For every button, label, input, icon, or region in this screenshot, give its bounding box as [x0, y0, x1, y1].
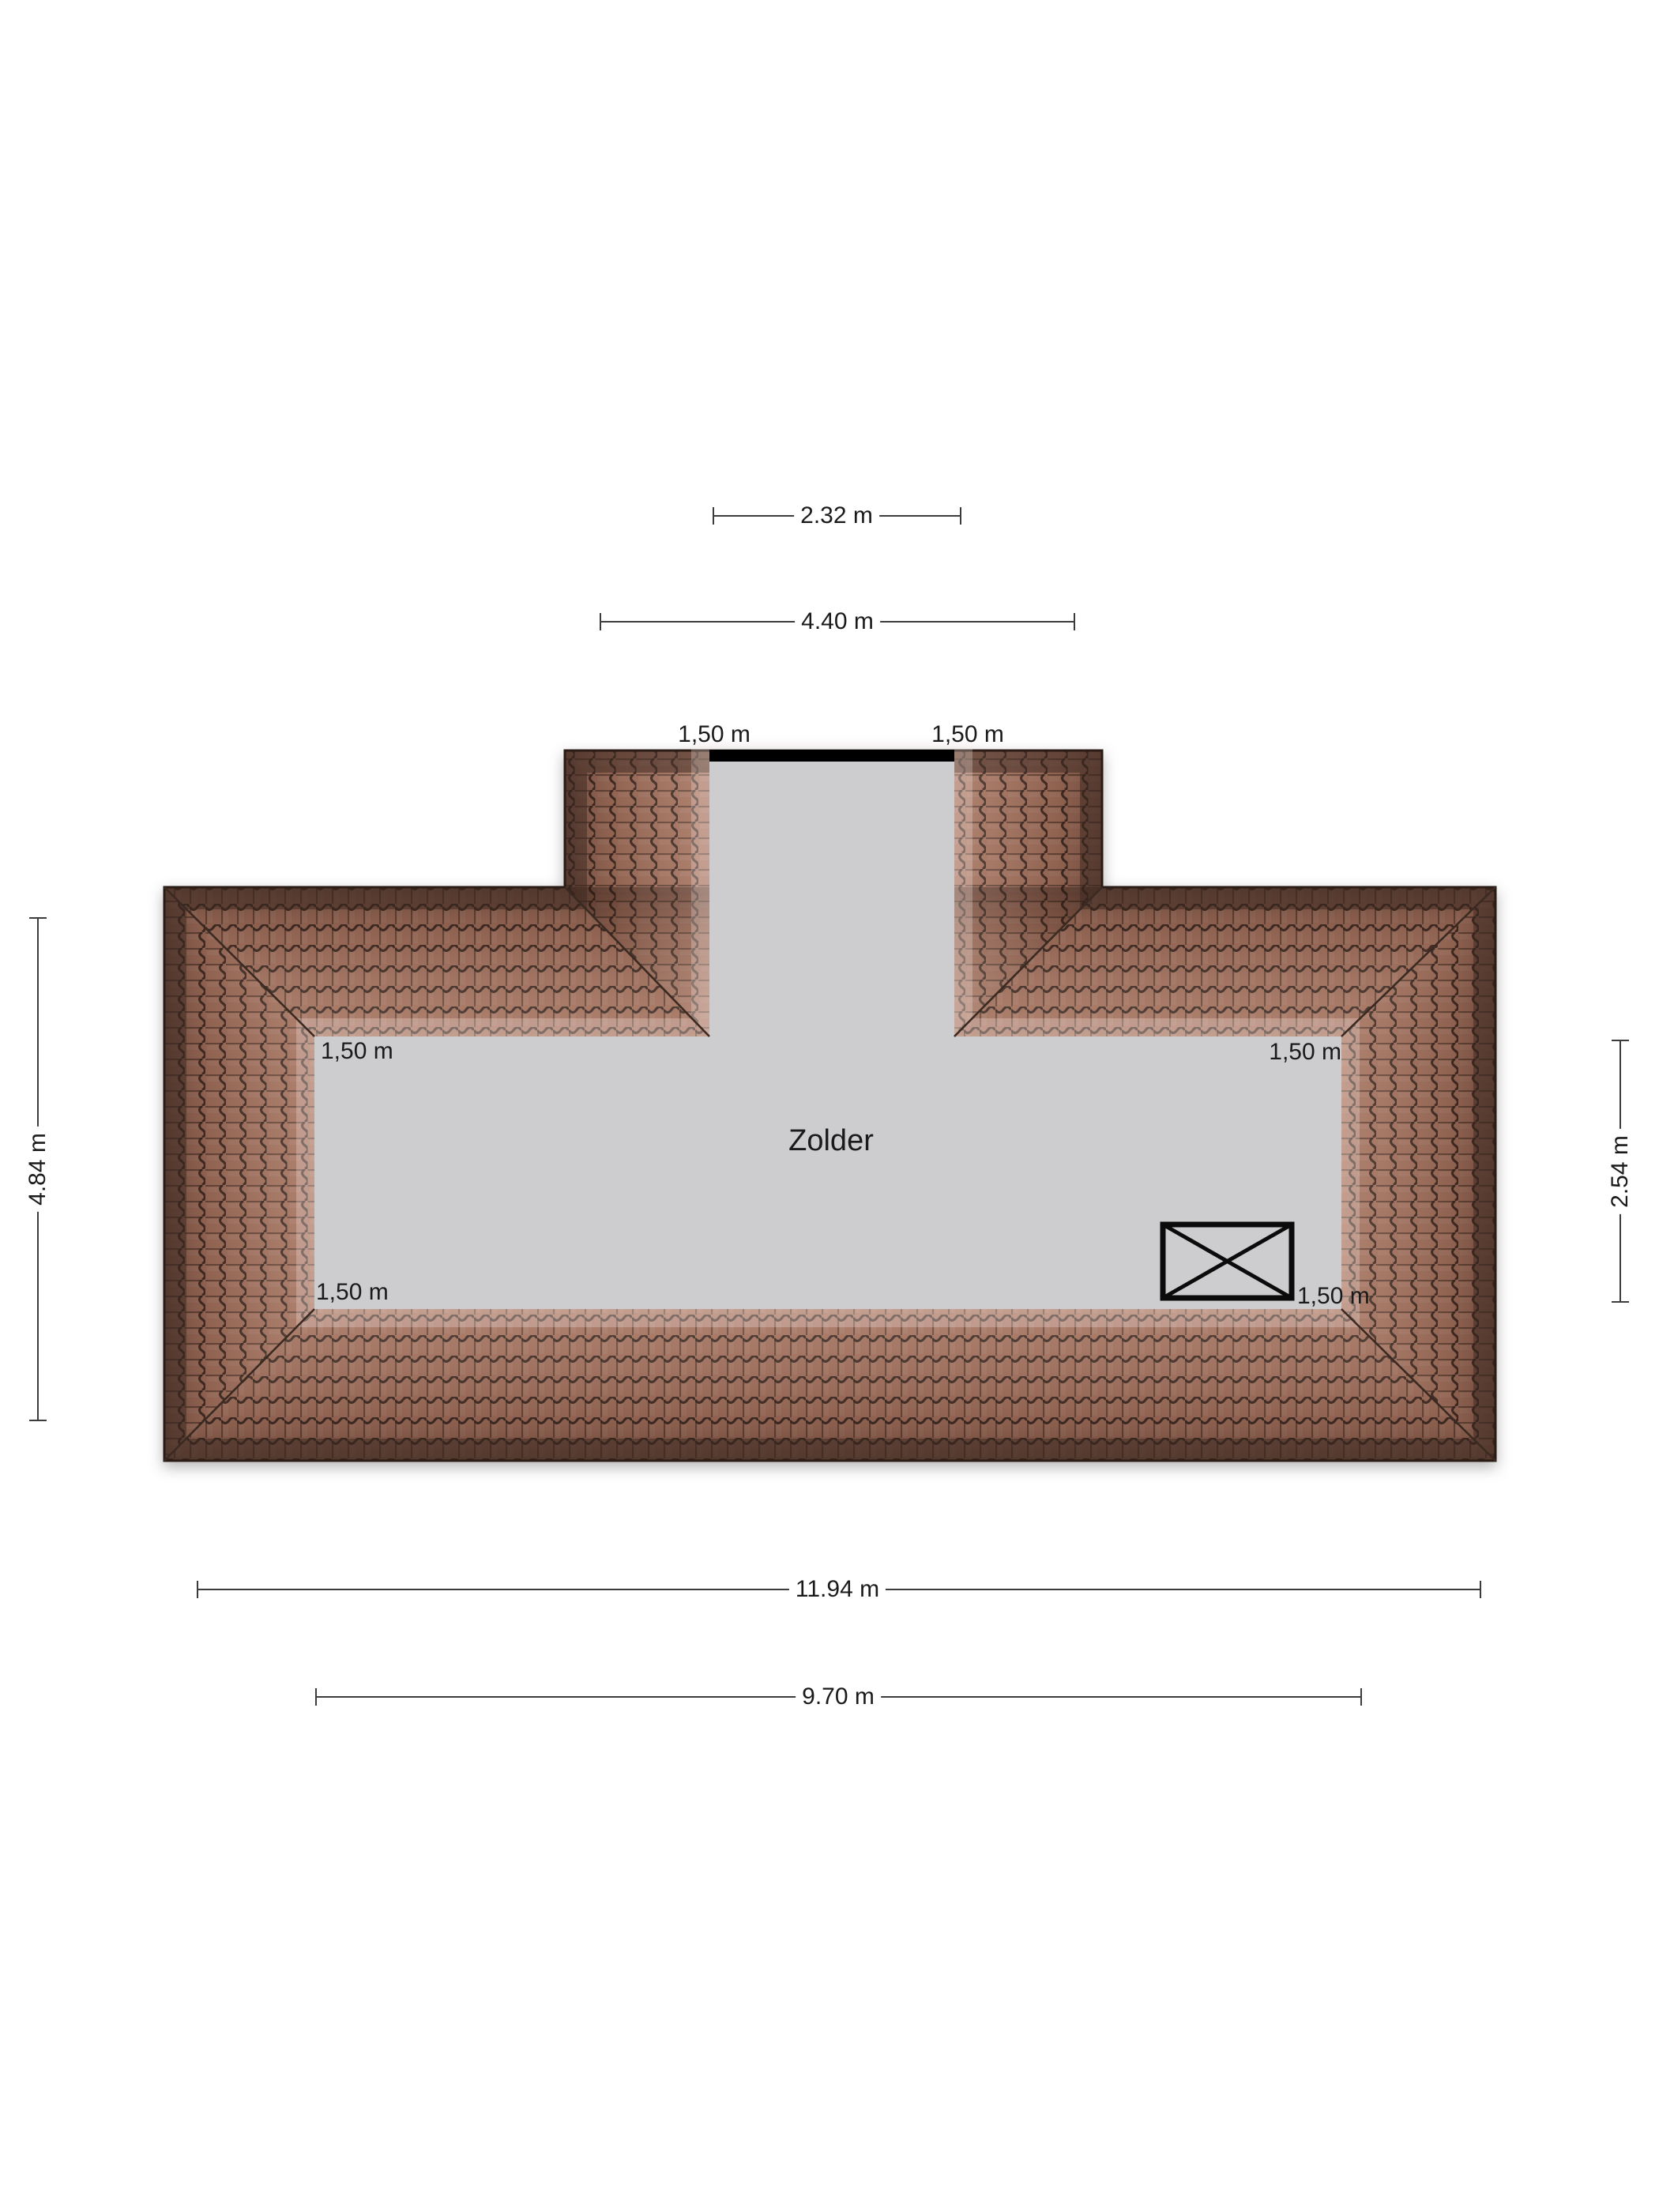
dim-dormer-inner-width: 2.32 m: [794, 502, 879, 529]
dim-interior-bottom-left-knee: 1,50 m: [316, 1281, 389, 1304]
roof-plan-svg: [0, 0, 1659, 2212]
dim-dormer-outer-width: 4.40 m: [795, 608, 880, 635]
floorplan-page: 2.32 m 4.40 m 1,50 m 1,50 m 4.84 m 2.54 …: [0, 0, 1659, 2212]
dim-house-width: 11.94 m: [789, 1576, 886, 1603]
dim-interior-bottom-right-knee: 1,50 m: [1297, 1285, 1370, 1308]
dim-interior-top-right-knee: 1,50 m: [1269, 1040, 1341, 1064]
roof-body: [164, 750, 1495, 1461]
shade-bottom: [164, 1309, 1495, 1461]
dim-attic-floor-width: 9.70 m: [796, 1683, 881, 1710]
dim-attic-floor-depth: 2.54 m: [1607, 1129, 1634, 1214]
dormer-front-wall: [709, 750, 954, 762]
dim-house-depth: 4.84 m: [24, 1127, 51, 1212]
dim-interior-top-left-knee: 1,50 m: [321, 1040, 393, 1063]
dim-dormer-right-knee: 1,50 m: [931, 723, 1004, 747]
room-label: Zolder: [788, 1126, 874, 1156]
dim-dormer-left-knee: 1,50 m: [678, 723, 750, 747]
